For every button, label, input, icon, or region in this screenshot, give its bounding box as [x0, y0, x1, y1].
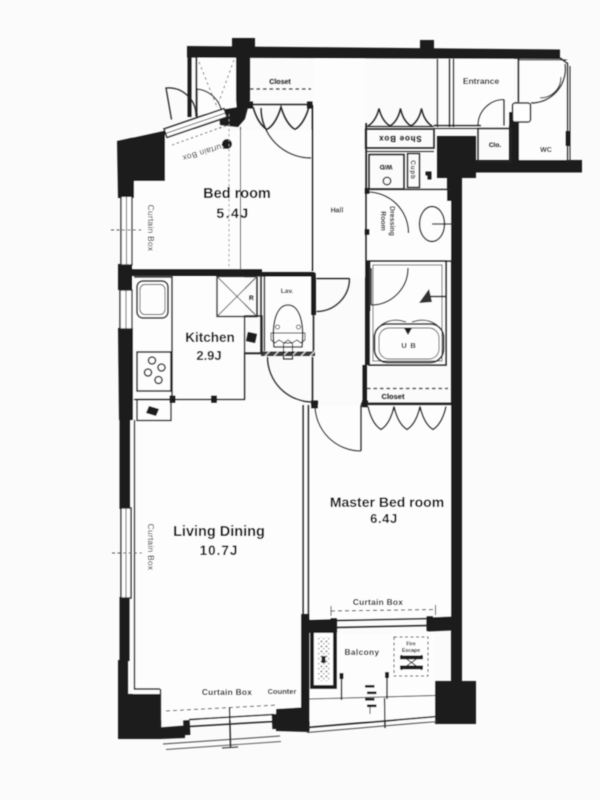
svg-text:Escape: Escape [402, 648, 420, 654]
svg-text:6.4J: 6.4J [370, 511, 398, 526]
svg-text:Shoe Box: Shoe Box [378, 134, 421, 143]
svg-text:10.7J: 10.7J [200, 543, 239, 558]
svg-text:Living Dining: Living Dining [173, 524, 265, 540]
svg-text:Curtain Box: Curtain Box [146, 524, 156, 571]
svg-text:Lav.: Lav. [281, 288, 294, 295]
svg-text:Curtain Box: Curtain Box [353, 597, 403, 607]
svg-text:W/D: W/D [379, 163, 392, 170]
svg-text:Master Bed room: Master Bed room [330, 494, 444, 510]
svg-text:Closet: Closet [269, 79, 291, 86]
svg-text:Counter: Counter [268, 687, 297, 696]
svg-text:R: R [249, 295, 254, 302]
svg-text:Kitchen: Kitchen [185, 330, 235, 345]
svg-text:Closet: Closet [382, 392, 405, 401]
svg-text:U B: U B [401, 341, 416, 350]
svg-text:Dressing: Dressing [388, 206, 395, 236]
svg-text:Room: Room [379, 211, 386, 231]
svg-text:5.4J: 5.4J [216, 205, 249, 221]
svg-text:Balcony: Balcony [344, 647, 379, 657]
svg-text:Curtain Box: Curtain Box [146, 205, 156, 252]
svg-text:Curtain Box: Curtain Box [202, 687, 252, 697]
svg-text:Hall: Hall [331, 208, 344, 215]
svg-text:Clo.: Clo. [489, 142, 501, 149]
svg-text:WC: WC [540, 147, 552, 154]
svg-text:Entrance: Entrance [463, 76, 500, 86]
svg-text:Cupb: Cupb [409, 160, 416, 180]
svg-text:Bed room: Bed room [203, 186, 271, 202]
svg-text:Fire: Fire [406, 642, 416, 648]
svg-text:2.9J: 2.9J [196, 348, 221, 363]
